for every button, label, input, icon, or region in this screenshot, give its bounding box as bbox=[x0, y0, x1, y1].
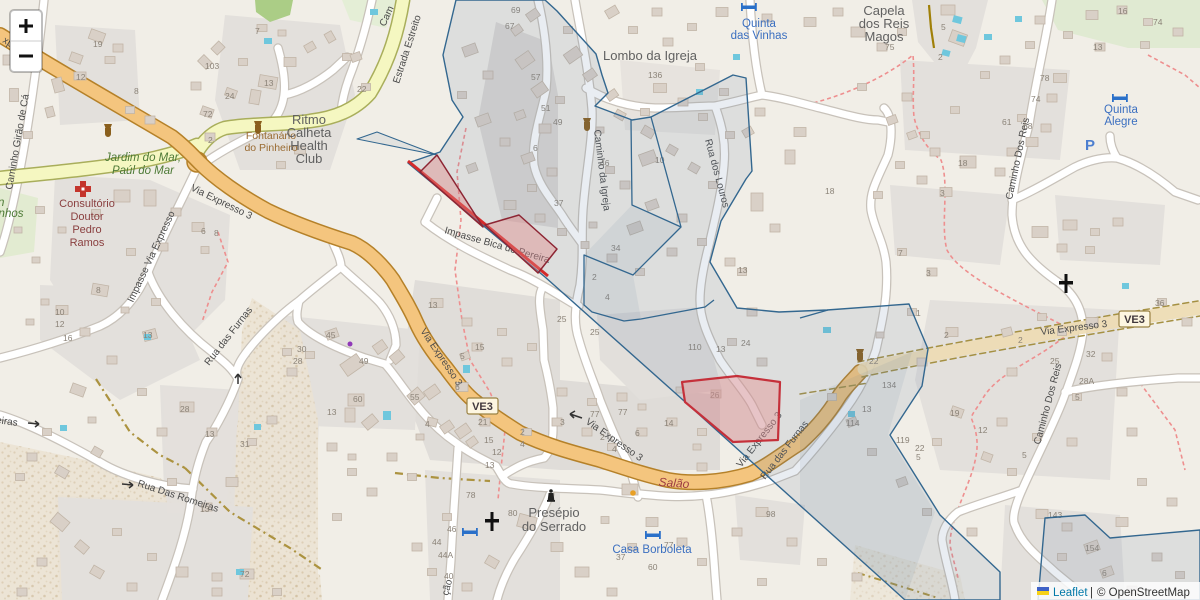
svg-text:103: 103 bbox=[205, 61, 219, 71]
svg-text:15: 15 bbox=[484, 435, 494, 445]
svg-text:19: 19 bbox=[950, 408, 960, 418]
svg-text:119: 119 bbox=[896, 435, 910, 445]
svg-text:5: 5 bbox=[941, 22, 946, 32]
svg-text:Alegre: Alegre bbox=[1104, 116, 1137, 128]
svg-text:24: 24 bbox=[225, 91, 235, 101]
svg-text:30: 30 bbox=[297, 344, 307, 354]
svg-text:78: 78 bbox=[1040, 73, 1050, 83]
svg-text:72: 72 bbox=[240, 569, 250, 579]
svg-text:16: 16 bbox=[1118, 6, 1128, 16]
svg-text:22: 22 bbox=[915, 443, 925, 453]
svg-text:12: 12 bbox=[978, 425, 988, 435]
svg-text:7: 7 bbox=[898, 248, 903, 258]
svg-text:3: 3 bbox=[926, 268, 931, 278]
svg-text:46: 46 bbox=[447, 524, 457, 534]
svg-text:25: 25 bbox=[590, 327, 600, 337]
svg-text:6: 6 bbox=[455, 382, 460, 392]
svg-text:12: 12 bbox=[76, 72, 86, 82]
svg-text:4: 4 bbox=[612, 444, 617, 454]
svg-text:49: 49 bbox=[359, 356, 369, 366]
svg-text:1: 1 bbox=[916, 308, 921, 318]
svg-text:5: 5 bbox=[460, 351, 465, 361]
svg-text:Paúl do Mar: Paúl do Mar bbox=[112, 165, 175, 177]
svg-text:15: 15 bbox=[475, 342, 485, 352]
svg-text:13: 13 bbox=[428, 300, 438, 310]
svg-text:74: 74 bbox=[1031, 94, 1041, 104]
svg-text:18: 18 bbox=[958, 158, 968, 168]
svg-text:136: 136 bbox=[648, 70, 662, 80]
svg-text:13: 13 bbox=[327, 407, 337, 417]
svg-text:13: 13 bbox=[1093, 42, 1103, 52]
svg-text:Quinta: Quinta bbox=[1104, 104, 1138, 116]
svg-text:6: 6 bbox=[635, 428, 640, 438]
svg-text:19: 19 bbox=[93, 39, 103, 49]
svg-text:13: 13 bbox=[485, 460, 495, 470]
svg-text:75: 75 bbox=[885, 42, 895, 52]
svg-text:Leaflet: Leaflet bbox=[1053, 587, 1088, 599]
svg-text:5: 5 bbox=[916, 452, 921, 462]
svg-text:Salão: Salão bbox=[658, 475, 690, 491]
svg-text:|: | bbox=[1090, 587, 1093, 599]
svg-text:Club: Club bbox=[296, 151, 323, 166]
svg-text:72: 72 bbox=[203, 109, 213, 119]
svg-text:Quinta: Quinta bbox=[742, 18, 776, 30]
svg-text:44A: 44A bbox=[438, 550, 453, 560]
svg-text:13: 13 bbox=[143, 330, 153, 340]
svg-text:98: 98 bbox=[766, 509, 776, 519]
svg-text:60: 60 bbox=[648, 562, 658, 572]
svg-text:VE3: VE3 bbox=[1124, 314, 1145, 326]
svg-text:13: 13 bbox=[200, 504, 210, 514]
svg-text:28: 28 bbox=[293, 356, 303, 366]
svg-text:5: 5 bbox=[1022, 450, 1027, 460]
svg-text:18: 18 bbox=[825, 186, 835, 196]
svg-text:77: 77 bbox=[664, 540, 674, 550]
svg-text:7: 7 bbox=[255, 26, 260, 36]
svg-text:3: 3 bbox=[560, 417, 565, 427]
svg-text:60: 60 bbox=[353, 394, 363, 404]
svg-text:13: 13 bbox=[738, 265, 748, 275]
svg-text:2: 2 bbox=[520, 427, 525, 437]
svg-text:5: 5 bbox=[1075, 392, 1080, 402]
svg-text:das Vinhas: das Vinhas bbox=[731, 30, 788, 42]
svg-text:21: 21 bbox=[478, 417, 488, 427]
svg-text:Lombo da Igreja: Lombo da Igreja bbox=[603, 48, 698, 63]
svg-text:45: 45 bbox=[326, 330, 336, 340]
svg-text:do Serrado: do Serrado bbox=[522, 519, 586, 534]
svg-text:2: 2 bbox=[600, 432, 605, 442]
svg-text:16: 16 bbox=[63, 333, 73, 343]
svg-text:12: 12 bbox=[492, 447, 502, 457]
svg-text:© OpenStreetMap: © OpenStreetMap bbox=[1097, 587, 1190, 599]
svg-text:2: 2 bbox=[1018, 335, 1023, 345]
svg-text:44: 44 bbox=[432, 537, 442, 547]
svg-text:Doutor: Doutor bbox=[70, 211, 103, 223]
svg-text:13: 13 bbox=[264, 78, 274, 88]
svg-text:10: 10 bbox=[55, 307, 65, 317]
svg-text:2: 2 bbox=[944, 330, 949, 340]
svg-text:40: 40 bbox=[444, 571, 454, 581]
svg-text:Pedro: Pedro bbox=[72, 224, 101, 236]
svg-text:6: 6 bbox=[201, 226, 206, 236]
svg-text:inhos: inhos bbox=[0, 208, 24, 220]
svg-text:Consultório: Consultório bbox=[59, 198, 115, 210]
svg-text:8: 8 bbox=[134, 86, 139, 96]
svg-text:14: 14 bbox=[664, 418, 674, 428]
svg-text:4: 4 bbox=[520, 439, 525, 449]
svg-text:2: 2 bbox=[938, 52, 943, 62]
svg-text:Ramos: Ramos bbox=[70, 237, 105, 249]
svg-text:VE3: VE3 bbox=[472, 401, 493, 413]
svg-text:2: 2 bbox=[208, 135, 213, 145]
svg-text:77: 77 bbox=[590, 409, 600, 419]
svg-text:4: 4 bbox=[425, 419, 430, 429]
svg-text:80: 80 bbox=[508, 508, 518, 518]
svg-text:31: 31 bbox=[240, 439, 250, 449]
svg-text:25: 25 bbox=[1050, 356, 1060, 366]
svg-text:22: 22 bbox=[357, 84, 367, 94]
svg-text:28A: 28A bbox=[1079, 376, 1094, 386]
svg-text:3: 3 bbox=[940, 188, 945, 198]
svg-text:25: 25 bbox=[557, 314, 567, 324]
svg-text:36: 36 bbox=[1155, 298, 1165, 308]
svg-text:8: 8 bbox=[96, 285, 101, 295]
svg-text:Jardim do Mar,: Jardim do Mar, bbox=[104, 152, 181, 164]
svg-text:28: 28 bbox=[180, 404, 190, 414]
svg-text:78: 78 bbox=[466, 490, 476, 500]
svg-text:13: 13 bbox=[205, 429, 215, 439]
svg-text:74: 74 bbox=[1153, 17, 1163, 27]
svg-text:37: 37 bbox=[616, 552, 626, 562]
svg-text:Presépio: Presépio bbox=[528, 505, 579, 520]
svg-text:12: 12 bbox=[55, 319, 65, 329]
svg-text:32: 32 bbox=[1086, 349, 1096, 359]
svg-text:61: 61 bbox=[1002, 117, 1012, 127]
svg-text:77: 77 bbox=[618, 407, 628, 417]
svg-text:55: 55 bbox=[410, 392, 420, 402]
svg-text:68: 68 bbox=[1023, 121, 1033, 131]
svg-text:P: P bbox=[1085, 137, 1095, 154]
svg-text:8: 8 bbox=[214, 228, 219, 238]
